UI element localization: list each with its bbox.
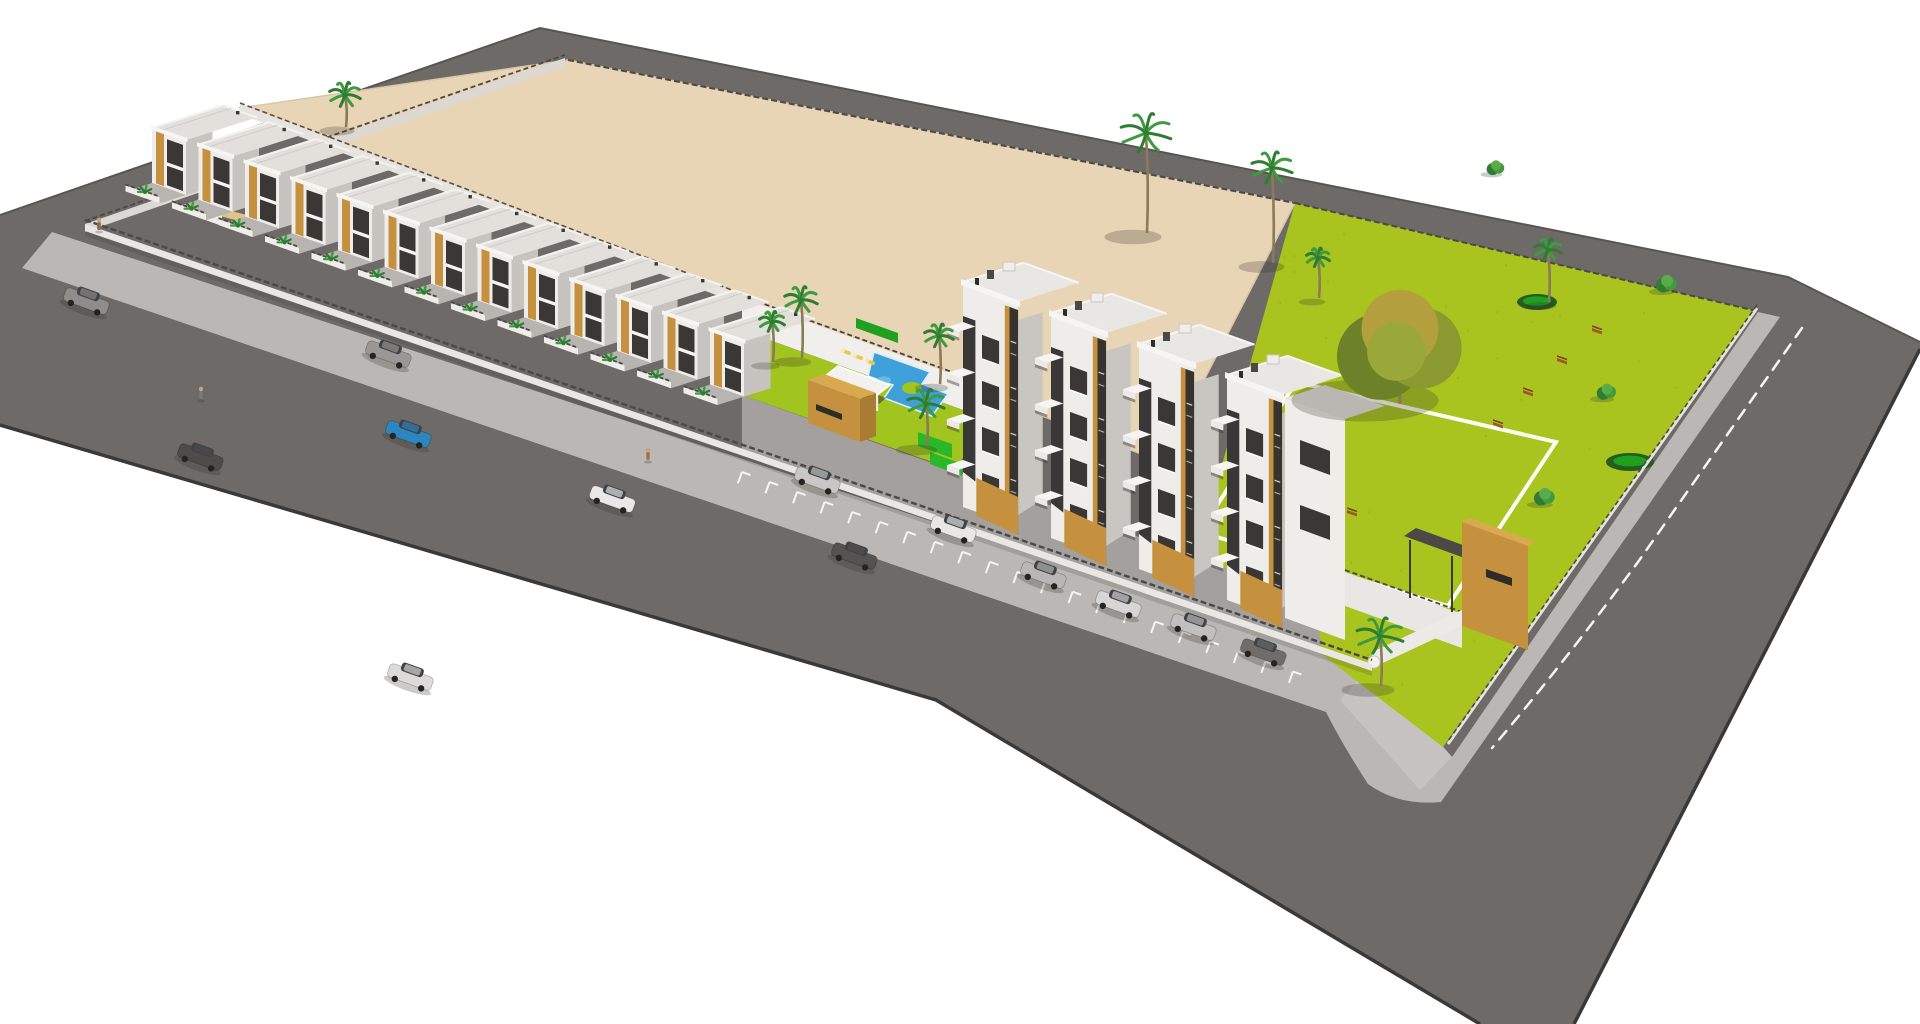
roof-access [1179,324,1191,333]
roof-box [1163,332,1170,341]
wood-accent [668,316,676,371]
wood-accent [203,148,211,203]
grass-speckle [1293,271,1296,274]
roof-vent [562,229,565,232]
grass-speckle [1367,511,1370,514]
kiosk-side [860,393,876,442]
grass-speckle [1505,264,1508,267]
wood-accent [435,232,443,287]
grass-speckle [1343,233,1346,236]
roof-box [1075,301,1082,310]
grass-speckle [1496,357,1499,360]
grass-speckle [1325,337,1328,340]
wood-accent [296,182,304,237]
architectural-render [0,0,1920,1024]
grass-speckle [1496,311,1499,314]
wood-accent [482,249,490,304]
grass-speckle [1457,377,1460,380]
roof-vent [283,128,286,131]
balcony-recess [1051,347,1063,513]
chimney [975,278,979,285]
grass-speckle [1293,255,1296,258]
wood-accent [249,165,257,220]
balcony-recess [1139,378,1151,544]
grass-speckle [1589,447,1592,450]
grass-speckle [1327,280,1330,283]
grass-speckle [1279,301,1282,304]
chimney [1239,371,1243,378]
roof-vent [701,279,704,282]
wood-accent [528,266,536,321]
wood-accent [156,131,164,186]
wood-accent [342,199,350,254]
roof-vent [748,296,751,299]
grass-speckle [1367,653,1370,656]
roof-vent [236,111,239,114]
grass-speckle [1283,256,1286,259]
wood-accent [389,215,397,270]
chimney [1063,309,1067,316]
balcony-recess [1227,409,1239,575]
grass-speckle [1675,386,1678,389]
roof-vent [515,212,518,215]
wood-accent [621,299,629,354]
roof-access [1003,262,1015,271]
grass-speckle [1388,698,1391,701]
roof-vent [469,195,472,198]
grass-speckle [1400,569,1403,572]
roof-vent [329,145,332,148]
roof-box [1251,363,1258,372]
roof-access [1267,355,1279,364]
wood-accent [714,333,722,388]
grass-speckle [1520,398,1523,401]
grass-speckle [1637,360,1640,363]
grass-speckle [1365,576,1368,579]
grass-speckle [1467,330,1470,333]
roof-vent [422,178,425,181]
grass-speckle [1530,321,1533,324]
grass-speckle [1485,435,1488,438]
bush [1481,160,1505,177]
planting-bed-top [1613,456,1647,467]
roof-vent [608,245,611,248]
wood-accent [575,283,583,338]
render-canvas [0,0,1920,1024]
roof-access [1091,293,1103,302]
balcony-recess [963,316,975,482]
roof-vent [376,161,379,164]
chimney [1151,340,1155,347]
roof-box [987,270,994,279]
grass-speckle [1401,683,1404,686]
grass-speckle [1473,639,1476,642]
grass-speckle [1559,314,1562,317]
roof-vent [655,262,658,265]
grass-speckle [1350,561,1353,564]
grass-speckle [1445,306,1448,309]
car [382,657,438,698]
grass-speckle [1643,312,1646,315]
